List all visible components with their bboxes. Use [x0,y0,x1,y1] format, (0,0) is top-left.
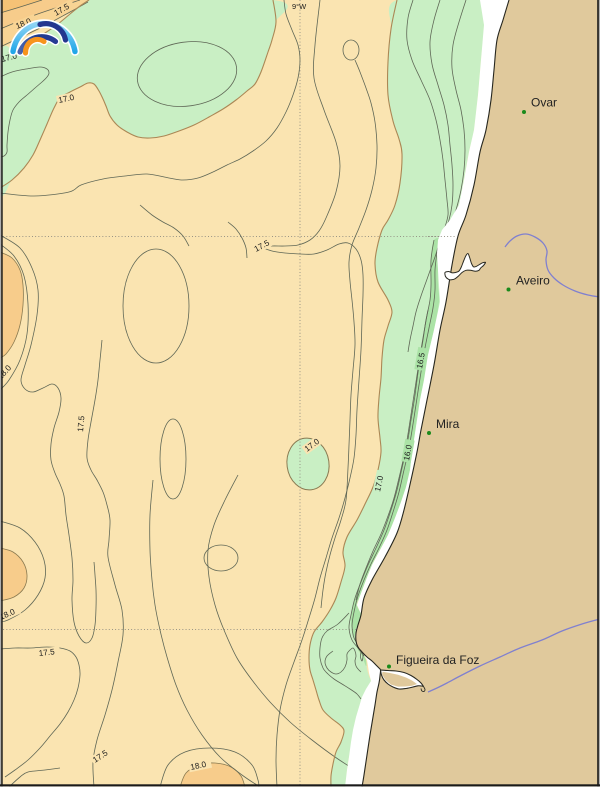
svg-text:17.5: 17.5 [38,647,55,658]
svg-text:Aveiro: Aveiro [516,274,550,288]
svg-text:17.5: 17.5 [76,415,86,432]
svg-text:Mira: Mira [436,417,460,431]
svg-text:Ovar: Ovar [531,96,557,110]
svg-text:9°W: 9°W [292,2,307,11]
svg-text:Figueira da Foz: Figueira da Foz [396,653,479,667]
